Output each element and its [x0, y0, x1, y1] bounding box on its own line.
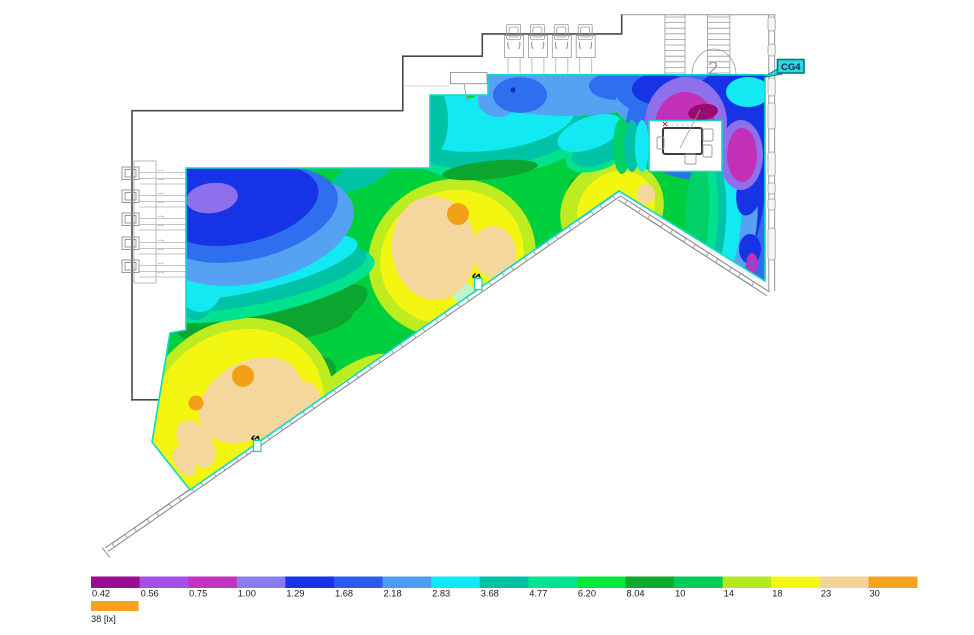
svg-text:0.56: 0.56	[141, 589, 159, 599]
svg-text:4.77: 4.77	[529, 589, 547, 599]
svg-text:CG4: CG4	[781, 62, 801, 73]
svg-text:0.75: 0.75	[189, 589, 207, 599]
svg-text:2.18: 2.18	[384, 589, 402, 599]
svg-text:1.68: 1.68	[335, 589, 353, 599]
svg-text:2.83: 2.83	[432, 589, 450, 599]
svg-text:23: 23	[821, 589, 831, 599]
svg-text:14: 14	[724, 589, 734, 599]
svg-text:6.20: 6.20	[578, 589, 596, 599]
svg-text:8.04: 8.04	[626, 589, 644, 599]
svg-text:10: 10	[675, 589, 685, 599]
svg-text:1.29: 1.29	[286, 589, 304, 599]
svg-text:18: 18	[772, 589, 782, 599]
svg-text:3.68: 3.68	[481, 589, 499, 599]
svg-text:30: 30	[869, 589, 879, 599]
svg-text:38 [lx]: 38 [lx]	[91, 614, 116, 624]
svg-text:0.42: 0.42	[92, 589, 110, 599]
svg-text:1.00: 1.00	[238, 589, 256, 599]
